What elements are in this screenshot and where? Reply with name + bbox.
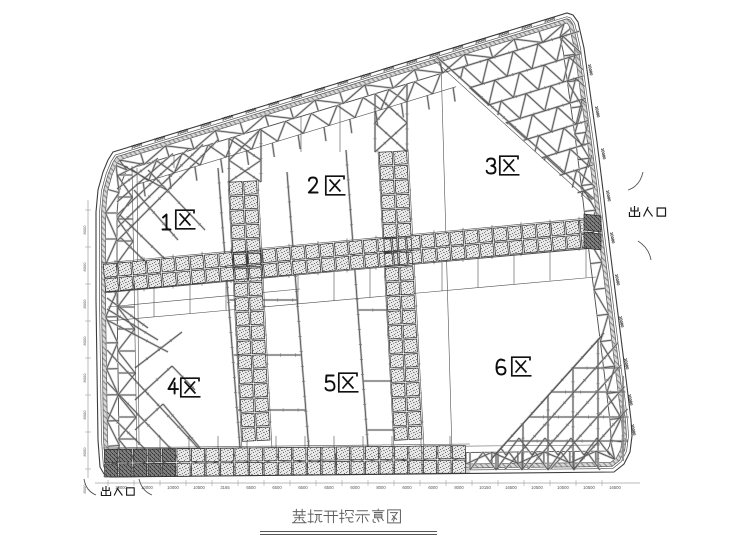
svg-text:16500: 16500 — [505, 485, 517, 490]
svg-text:8000: 8000 — [82, 373, 87, 383]
svg-text:10500: 10500 — [583, 485, 595, 490]
svg-text:8000: 8000 — [82, 299, 87, 309]
svg-text:8000: 8000 — [82, 410, 87, 420]
svg-text:8000: 8000 — [82, 447, 87, 457]
svg-text:6500: 6500 — [298, 485, 308, 490]
svg-text:16500: 16500 — [609, 485, 621, 490]
svg-text:10500: 10500 — [557, 485, 569, 490]
svg-text:10000: 10000 — [141, 485, 153, 490]
svg-text:10150: 10150 — [479, 485, 491, 490]
svg-text:8000: 8000 — [82, 225, 87, 235]
svg-text:6000: 6000 — [350, 485, 360, 490]
svg-text:8000: 8000 — [454, 485, 464, 490]
svg-text:10500: 10500 — [193, 485, 205, 490]
svg-text:8000: 8000 — [82, 262, 87, 272]
svg-text:6500: 6500 — [324, 485, 334, 490]
svg-text:6000: 6000 — [402, 485, 412, 490]
svg-text:10000: 10000 — [115, 485, 127, 490]
svg-text:8000: 8000 — [82, 484, 87, 494]
svg-text:6500: 6500 — [246, 485, 256, 490]
svg-text:10500: 10500 — [531, 485, 543, 490]
svg-text:6000: 6000 — [428, 485, 438, 490]
svg-text:8000: 8000 — [376, 485, 386, 490]
svg-text:8000: 8000 — [82, 336, 87, 346]
svg-text:10000: 10000 — [167, 485, 179, 490]
svg-text:3165: 3165 — [220, 485, 230, 490]
svg-text:6500: 6500 — [272, 485, 282, 490]
